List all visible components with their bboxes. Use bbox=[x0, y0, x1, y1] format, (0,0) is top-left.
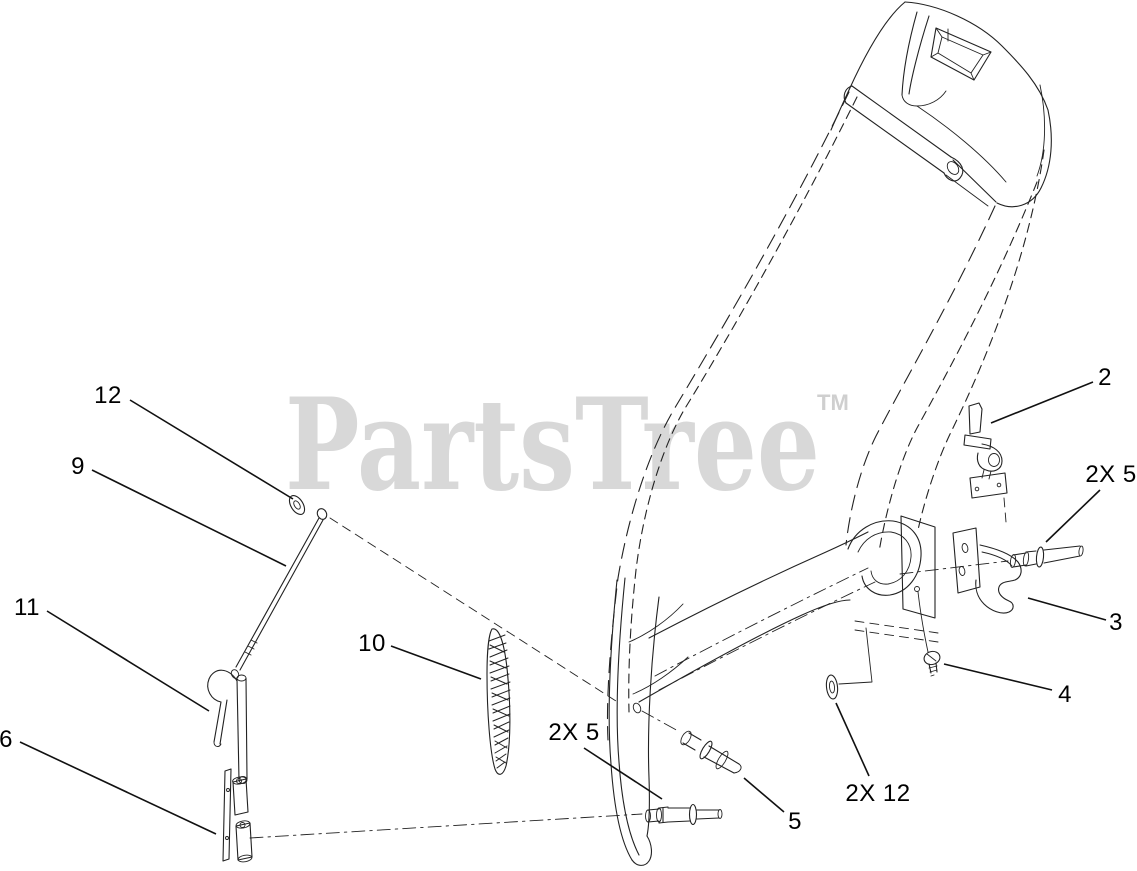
parts-diagram: PartsTree TM bbox=[0, 0, 1137, 871]
callout-label-6[interactable]: 6 bbox=[0, 726, 13, 754]
callout-label-10[interactable]: 10 bbox=[358, 630, 386, 658]
leader-line-10 bbox=[391, 646, 481, 679]
leader-line-2X-5 bbox=[584, 748, 662, 799]
callout-label-2X-12[interactable]: 2X 12 bbox=[845, 780, 910, 808]
callout-label-5[interactable]: 5 bbox=[788, 808, 802, 836]
leader-line-6 bbox=[20, 742, 216, 834]
callout-label-9[interactable]: 9 bbox=[71, 453, 85, 481]
leader-line-4 bbox=[944, 664, 1052, 690]
leader-line-2X-12 bbox=[836, 703, 869, 776]
leader-line-9 bbox=[92, 470, 286, 566]
callout-label-11[interactable]: 11 bbox=[14, 594, 40, 622]
leader-line-12 bbox=[130, 400, 293, 499]
leader-line-5 bbox=[744, 778, 784, 812]
leader-line-2X-5 bbox=[1046, 490, 1100, 542]
callout-label-4[interactable]: 4 bbox=[1058, 681, 1072, 709]
callout-label-3[interactable]: 3 bbox=[1109, 609, 1123, 637]
callout-label-12[interactable]: 12 bbox=[94, 382, 122, 410]
leader-line-2 bbox=[991, 382, 1093, 423]
leader-line-3 bbox=[1028, 598, 1106, 620]
callout-label-2X-5[interactable]: 2X 5 bbox=[1085, 461, 1136, 489]
callout-label-2X-5[interactable]: 2X 5 bbox=[548, 719, 599, 747]
leader-line-11 bbox=[47, 611, 209, 711]
callout-label-2[interactable]: 2 bbox=[1098, 364, 1112, 392]
